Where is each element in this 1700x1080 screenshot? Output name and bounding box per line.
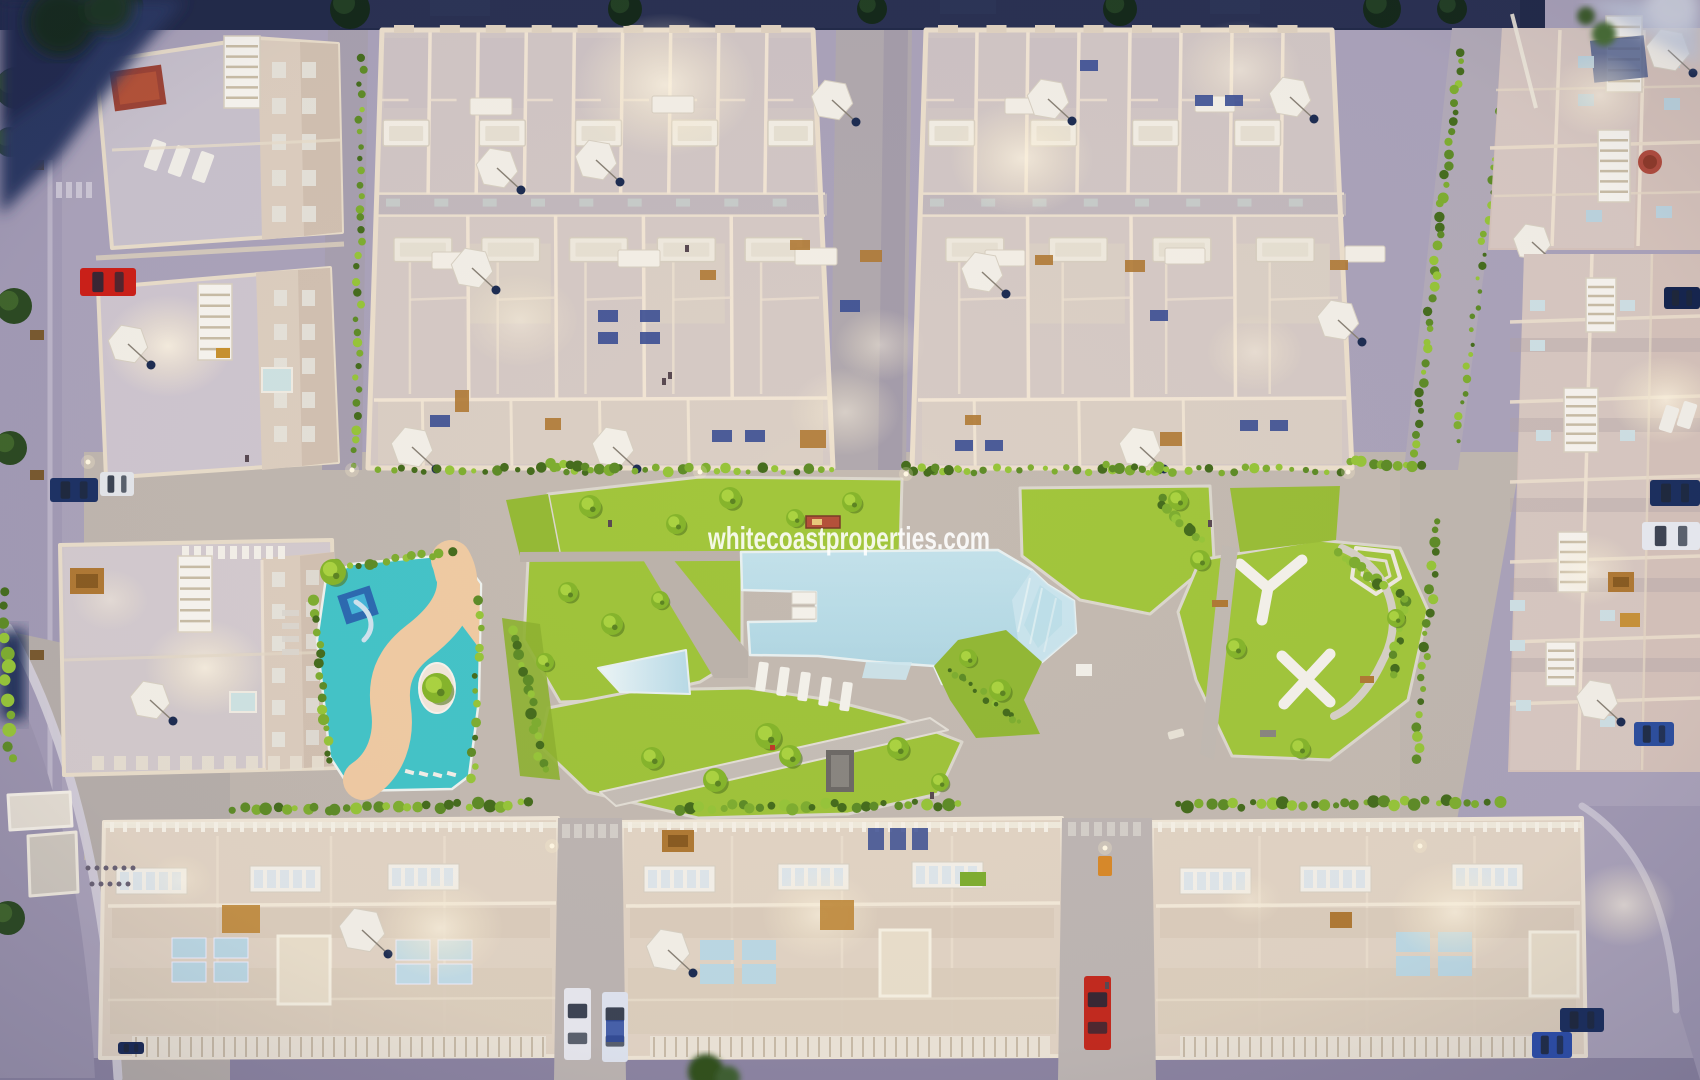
svg-text:whitecoastproperties.com: whitecoastproperties.com bbox=[707, 520, 990, 556]
